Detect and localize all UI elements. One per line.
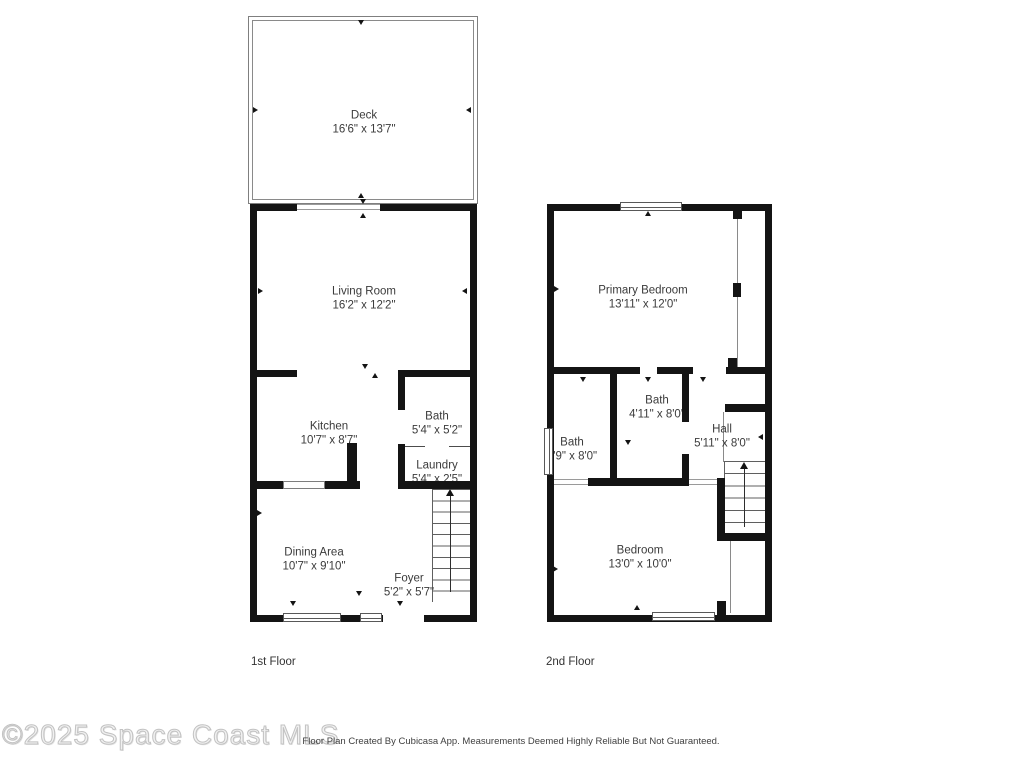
room-name: Kitchen <box>301 421 358 435</box>
wall-segment <box>250 481 284 489</box>
window <box>360 613 382 622</box>
wall-segment <box>610 374 617 478</box>
measure-tick <box>397 601 403 606</box>
room-label-bath-left: Bath 4'9" x 8'0" <box>547 437 597 464</box>
room-label-dining-area: Dining Area 10'7" x 9'10" <box>282 547 345 574</box>
room-dims: 5'4" x 5'2" <box>412 424 462 438</box>
room-dims: 5'11" x 8'0" <box>694 437 750 451</box>
closet-line <box>730 541 731 613</box>
room-name: Dining Area <box>282 547 345 561</box>
room-label-primary-bedroom: Primary Bedroom 13'11" x 12'0" <box>598 285 687 312</box>
stairs-up-arrow-shaft <box>450 496 451 592</box>
stairs-bottom-wall <box>717 533 772 541</box>
room-name: Laundry <box>412 460 462 474</box>
measure-tick <box>634 605 640 610</box>
entry-door-opening <box>383 615 424 622</box>
wall-segment <box>657 367 693 374</box>
measure-tick <box>645 211 651 216</box>
measure-tick <box>358 20 364 25</box>
room-name: Deck <box>332 110 395 124</box>
wall-segment <box>398 370 477 377</box>
room-name: Hall <box>694 424 750 438</box>
measure-tick <box>645 377 651 382</box>
wall-segment <box>398 481 477 489</box>
staircase-first-floor <box>432 489 470 602</box>
bath-laundry-divider <box>449 446 470 447</box>
room-name: Primary Bedroom <box>598 285 687 299</box>
measure-tick <box>553 566 558 572</box>
window <box>652 612 715 621</box>
mls-watermark: ©2025 Space Coast MLS <box>2 719 339 751</box>
room-dims: 10'7" x 9'10" <box>282 560 345 574</box>
wall-stub <box>717 601 726 615</box>
measure-tick <box>356 591 362 596</box>
wall-segment <box>547 367 640 374</box>
room-label-bedroom: Bedroom 13'0" x 10'0" <box>608 545 671 572</box>
kitchen-pass-through <box>283 481 325 489</box>
measure-tick <box>372 373 378 378</box>
measure-tick <box>466 107 471 113</box>
wall-stub <box>728 358 737 374</box>
measure-tick <box>462 288 467 294</box>
hall-closet-wall <box>725 404 772 412</box>
room-dims: 13'0" x 10'0" <box>608 558 671 572</box>
room-label-bath-1f: Bath 5'4" x 5'2" <box>412 411 462 438</box>
first-floor-caption: 1st Floor <box>251 656 296 668</box>
measure-tick <box>758 434 763 440</box>
room-dims: 4'11" x 8'0" <box>629 408 685 422</box>
wall-segment <box>398 377 405 410</box>
room-name: Bath <box>412 411 462 425</box>
room-name: Foyer <box>384 573 434 587</box>
doorway-line <box>554 484 588 485</box>
room-label-bath-middle: Bath 4'11" x 8'0" <box>629 395 685 422</box>
floor-plan-canvas: Deck 16'6" x 13'7" Living Room 16'2" x 1… <box>0 0 1024 768</box>
measure-tick <box>580 377 586 382</box>
room-label-living-room: Living Room 16'2" x 12'2" <box>332 286 396 313</box>
room-dims: 16'2" x 12'2" <box>332 299 396 313</box>
room-dims: 13'11" x 12'0" <box>598 298 687 312</box>
door-block <box>733 283 741 297</box>
stairs-side-wall <box>717 478 725 541</box>
room-dims: 4'9" x 8'0" <box>547 450 597 464</box>
room-label-foyer: Foyer 5'2" x 5'7" <box>384 573 434 600</box>
bath-laundry-divider <box>405 446 425 447</box>
doorway-line <box>554 479 588 480</box>
window <box>620 202 682 211</box>
room-label-deck: Deck 16'6" x 13'7" <box>332 110 395 137</box>
sliding-door-line <box>297 209 380 210</box>
measure-tick <box>257 510 262 516</box>
stairs-up-arrow-icon <box>740 462 748 469</box>
doorway-line <box>689 484 717 485</box>
window <box>544 428 553 475</box>
measure-tick <box>360 213 366 218</box>
measure-tick <box>258 288 263 294</box>
room-dims: 5'2" x 5'7" <box>384 586 434 600</box>
second-floor-caption: 2nd Floor <box>546 656 595 668</box>
wall-segment <box>588 478 689 486</box>
measure-tick <box>290 601 296 606</box>
room-name: Bath <box>629 395 685 409</box>
room-label-hall: Hall 5'11" x 8'0" <box>694 424 750 451</box>
window <box>283 613 341 622</box>
kitchen-peninsula-wall <box>347 443 357 483</box>
wall-segment <box>682 374 689 422</box>
measure-tick <box>554 286 559 292</box>
room-name: Bath <box>547 437 597 451</box>
measure-tick <box>362 364 368 369</box>
room-name: Living Room <box>332 286 396 300</box>
wall-segment <box>250 370 297 377</box>
room-name: Bedroom <box>608 545 671 559</box>
measure-tick <box>360 199 366 204</box>
doorway-line <box>689 479 717 480</box>
stairs-up-arrow-icon <box>446 489 454 496</box>
measure-tick <box>253 107 258 113</box>
measure-tick <box>358 193 364 198</box>
wall-stub <box>733 211 742 219</box>
measure-tick <box>625 440 631 445</box>
measure-tick <box>700 377 706 382</box>
disclaimer-text: Floor Plan Created By Cubicasa App. Meas… <box>302 736 719 747</box>
stairs-up-arrow-shaft <box>744 469 745 527</box>
room-dims: 16'6" x 13'7" <box>332 123 395 137</box>
sliding-door-line <box>297 204 380 205</box>
